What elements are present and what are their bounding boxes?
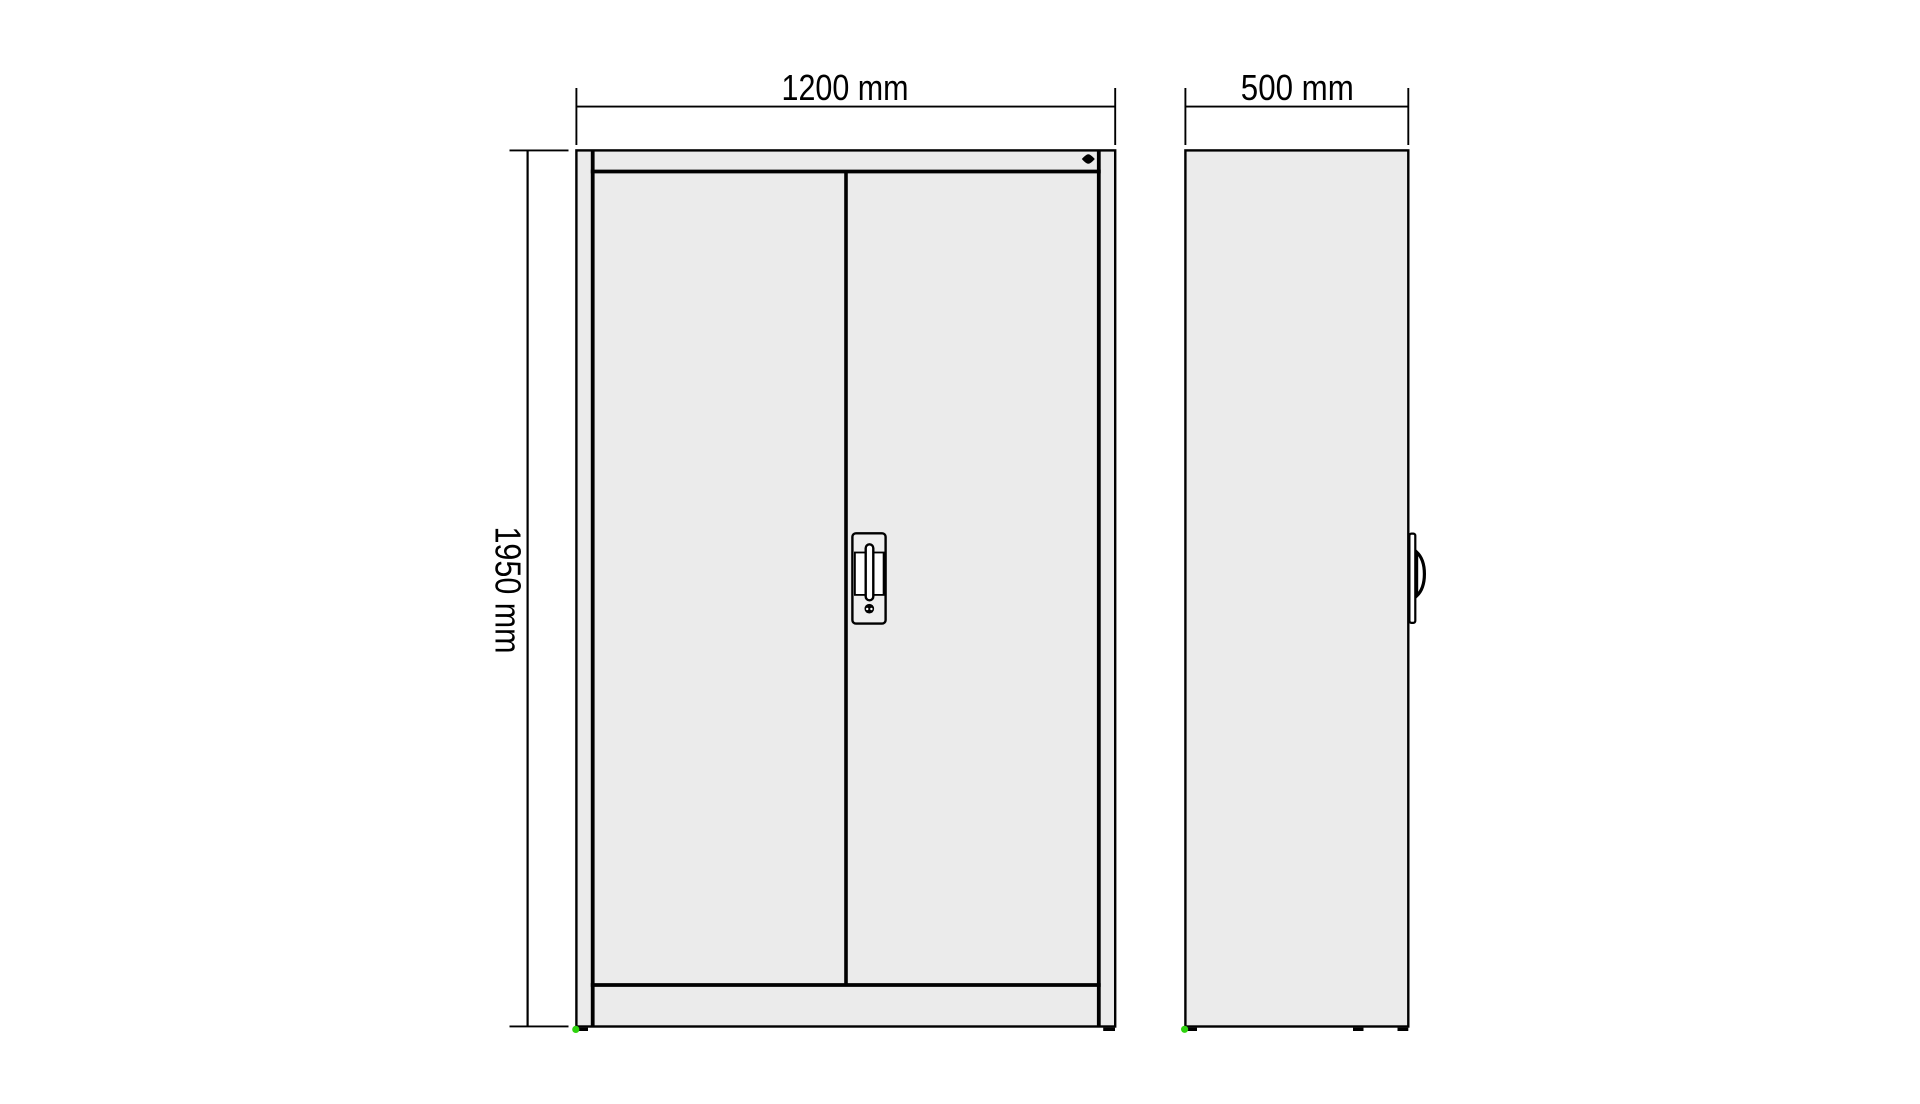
- svg-text:500 mm: 500 mm: [1241, 67, 1354, 108]
- svg-text:1950 mm: 1950 mm: [487, 527, 528, 654]
- svg-text:1200 mm: 1200 mm: [782, 67, 909, 108]
